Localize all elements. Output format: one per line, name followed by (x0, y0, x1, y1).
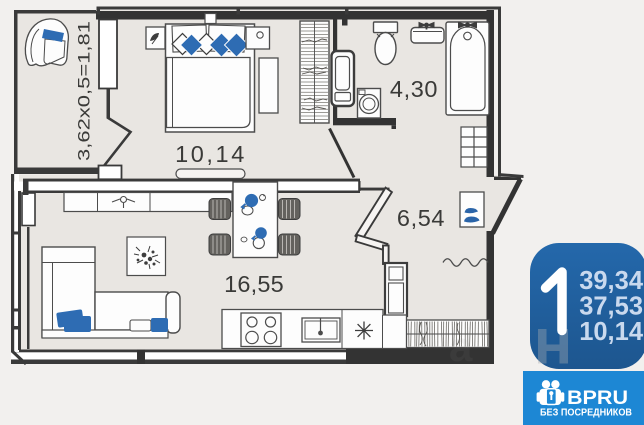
svg-text:BPRU: BPRU (567, 388, 628, 409)
svg-text:37,53: 37,53 (579, 293, 643, 321)
svg-text:4,30: 4,30 (390, 76, 438, 102)
svg-text:16,55: 16,55 (224, 271, 284, 297)
svg-text:3,62x0,5=1,81: 3,62x0,5=1,81 (76, 21, 94, 161)
svg-text:6,54: 6,54 (397, 205, 445, 231)
svg-text:39,34: 39,34 (579, 267, 644, 295)
svg-text:а: а (449, 323, 473, 370)
svg-text:10,14: 10,14 (175, 141, 247, 167)
svg-text:10,14: 10,14 (579, 318, 644, 346)
svg-text:БЕЗ ПОСРЕДНИКОВ: БЕЗ ПОСРЕДНИКОВ (540, 407, 632, 418)
